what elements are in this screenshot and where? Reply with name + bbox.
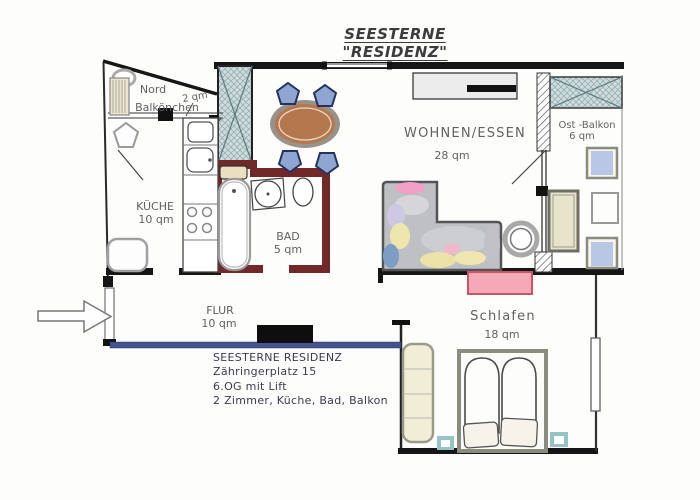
label-wohnen-area: 28 qm — [434, 149, 469, 162]
entrance-arrow-icon — [38, 301, 111, 332]
sideboard — [413, 73, 517, 99]
nightstand — [550, 432, 568, 447]
label-schlafen-area: 18 qm — [484, 328, 519, 341]
bath-sink — [251, 178, 285, 210]
pillow — [463, 422, 499, 448]
kitchen-table — [108, 239, 147, 271]
dining-chair — [277, 83, 299, 104]
address-block: SEESTERNE RESIDENZ Zähringerplatz 15 6.O… — [213, 351, 388, 409]
hatched-wall — [537, 73, 550, 151]
kitchen-door-swing — [118, 150, 143, 180]
label-kueche-area: 10 qm — [138, 213, 173, 226]
kitchen-furniture — [108, 118, 218, 272]
wardrobe — [403, 344, 433, 442]
label-wohnen: WOHNEN/ESSEN — [404, 126, 526, 141]
east-balcony-furniture — [549, 148, 618, 268]
dining-set — [270, 83, 340, 174]
balcony-chair — [587, 148, 617, 178]
label-bad-area: 5 qm — [274, 243, 302, 256]
label-schlafen: Schlafen — [470, 309, 536, 324]
faucet — [208, 158, 212, 162]
pillow — [500, 418, 537, 447]
balcony-bench — [549, 191, 578, 251]
label-bad: BAD — [276, 230, 300, 243]
label-ost-balkon: Ost -Balkon — [558, 120, 615, 131]
kitchen-counter — [183, 118, 218, 272]
fridge — [188, 122, 213, 142]
shaft-pillar — [218, 66, 252, 163]
balcony-table — [592, 193, 618, 223]
toilet — [293, 178, 313, 206]
label-nord-balkon-1: Nord — [140, 83, 166, 96]
label-kueche: KÜCHE — [136, 200, 174, 213]
bedroom-wall-cap — [392, 320, 410, 325]
kitchen-corner — [103, 276, 113, 287]
dining-chair — [314, 85, 336, 106]
bedroom-furniture — [403, 344, 568, 451]
bedroom-window — [591, 338, 600, 411]
living-furniture — [383, 73, 537, 294]
bath-shelf — [220, 166, 247, 179]
address-line: Zähringerplatz 15 — [213, 365, 388, 379]
top-wall — [214, 62, 624, 69]
address-line: 2 Zimmer, Küche, Bad, Balkon — [213, 394, 388, 408]
label-ost-area: 6 qm — [569, 131, 595, 142]
bathtub — [219, 179, 250, 270]
floorplan-page: SEESTERNE "RESIDENZ" — [0, 0, 700, 500]
pink-bench — [468, 272, 532, 294]
balcony-chair — [587, 238, 617, 268]
flur-sideboard — [257, 325, 313, 343]
side-table-round — [505, 223, 537, 255]
address-line: SEESTERNE RESIDENZ — [213, 351, 388, 365]
hatched-column — [535, 252, 552, 272]
flur-bottom-wall — [110, 342, 401, 348]
corner-sofa — [383, 182, 501, 270]
double-bed — [459, 351, 546, 451]
nightstand — [437, 436, 454, 450]
balcony-door-swing — [512, 151, 545, 184]
label-flur: FLUR — [206, 304, 234, 317]
north-balcony-furniture — [110, 70, 135, 115]
east-balcony-band — [550, 77, 622, 108]
stool — [114, 123, 138, 147]
dining-table — [275, 104, 335, 144]
label-nord-balkon-area: 2 qm — [182, 90, 209, 105]
floor-plan: Nord Balkönchen 2 qm KÜCHE 10 qm BAD 5 q… — [0, 0, 700, 500]
label-flur-area: 10 qm — [201, 317, 236, 330]
radiator — [110, 78, 129, 115]
address-line: 6.OG mit Lift — [213, 380, 388, 394]
